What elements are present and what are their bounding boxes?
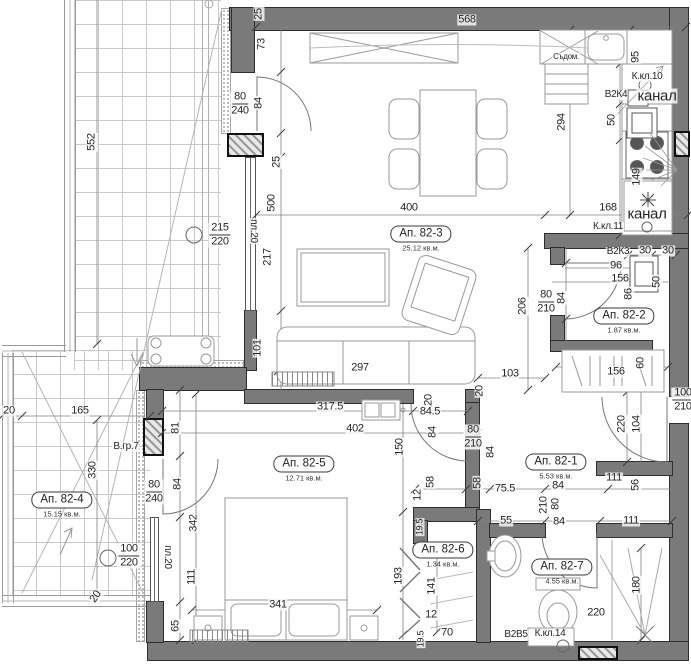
dim-label: К.кл.11	[592, 222, 624, 232]
dim-label: 165	[70, 406, 89, 417]
dim-label: 220	[586, 608, 605, 619]
dim-label: 19.5	[416, 518, 425, 536]
dim-label: 84	[173, 477, 184, 491]
dim-label: 210	[539, 495, 550, 514]
dim-label: 156	[606, 367, 625, 378]
dim-label: 180	[632, 575, 643, 594]
dim-label: 317.5	[316, 402, 344, 413]
dim-label: 20	[424, 393, 435, 407]
dim-label: 12	[413, 488, 424, 502]
dim-label: К.кл.14	[534, 629, 567, 639]
dim-label: 149	[632, 167, 643, 186]
dim-label: 80240	[230, 92, 249, 117]
dim-label: 84	[428, 425, 439, 439]
dim-label: 75.5	[494, 484, 516, 495]
dim-label: 20	[475, 384, 486, 398]
dim-label: пл.20	[248, 218, 258, 244]
dim-label: 80210	[463, 425, 482, 450]
dim-label: К.кл.10	[631, 72, 664, 82]
dim-label: 70	[440, 628, 454, 639]
dim-label: 220	[617, 414, 628, 433]
dim-label: 156	[610, 274, 629, 285]
dim-label: 80	[551, 497, 562, 511]
dim-label: 111	[605, 473, 623, 484]
dim-label: 25	[272, 155, 283, 169]
dim-label: 73	[257, 37, 268, 51]
dim-label: 402	[345, 424, 364, 435]
dim-label: 217	[263, 247, 274, 266]
dim-label: 55	[499, 516, 513, 527]
dim-label: В.гр.7	[112, 442, 139, 452]
dim-label: 150	[395, 437, 406, 456]
dim-label: В2К3	[606, 247, 630, 257]
dim-label: 25	[254, 7, 265, 21]
dim-label: 84	[552, 517, 566, 528]
dim-label: 294	[557, 112, 568, 131]
dim-label: 12	[424, 610, 438, 621]
dim-label: 84.5	[419, 407, 441, 418]
dim-label: 84	[254, 96, 265, 110]
dim-label: 58	[426, 475, 437, 489]
dim-label: 84	[557, 291, 568, 305]
dim-label: 19.5	[417, 630, 426, 648]
dim-label: 65	[171, 619, 182, 633]
dim-label: 552	[87, 132, 98, 151]
dim-label: 80210	[536, 290, 555, 315]
dim-label: 111	[187, 568, 198, 586]
dim-label: 101	[253, 338, 264, 357]
dim-label: 84	[486, 445, 497, 459]
dim-label: 95	[631, 50, 642, 64]
dim-label: 50	[607, 113, 618, 127]
dim-label: 84	[551, 481, 565, 492]
dim-label: 111	[622, 516, 640, 527]
dim-label: 96	[609, 261, 623, 272]
dim-label: 58	[473, 476, 484, 490]
dim-label: 30	[661, 246, 675, 257]
dim-label: 60	[636, 356, 647, 370]
dim-label: 56	[631, 478, 642, 492]
dim-label: канал	[626, 207, 667, 222]
dim-label: пл.20	[162, 544, 172, 570]
dim-label: В2В5	[503, 630, 528, 640]
dim-label: 30	[638, 246, 652, 257]
dim-label: 80240	[144, 480, 163, 505]
dim-label: 206	[518, 296, 529, 315]
dim-label: 400	[399, 203, 418, 214]
dim-label: 20	[88, 588, 105, 605]
dim-label: 50	[652, 275, 663, 289]
dim-label: Съдом.	[552, 53, 580, 61]
dim-label: 193	[394, 566, 405, 585]
dim-label: канал	[636, 89, 677, 104]
dim-label: 342	[189, 513, 200, 532]
dim-label: 168	[598, 203, 617, 214]
dim-label: 20	[2, 406, 16, 417]
dim-label: 86	[624, 287, 635, 301]
dimension-labels-layer: 56880240215220400168К.кл.10В2К4каналкана…	[0, 0, 691, 670]
dim-label: 100210	[671, 388, 691, 413]
dim-label: 297	[350, 363, 369, 374]
dim-label: 568	[457, 15, 476, 26]
dim-label: 81	[171, 421, 182, 435]
dim-label: 100220	[117, 544, 140, 569]
dim-label: 341	[268, 600, 287, 611]
dim-label: 500	[267, 193, 278, 212]
dim-label: В2К4	[604, 90, 628, 100]
dim-label: 330	[88, 460, 99, 479]
dim-label: 104	[632, 414, 643, 433]
floor-plan-canvas: Ап. 82-325.12 кв.м.Ап. 82-21.87 кв.м.Ап.…	[0, 0, 691, 670]
dim-label: 215220	[208, 223, 231, 248]
dim-label: 103	[500, 369, 519, 380]
dim-label: 141	[427, 576, 438, 595]
